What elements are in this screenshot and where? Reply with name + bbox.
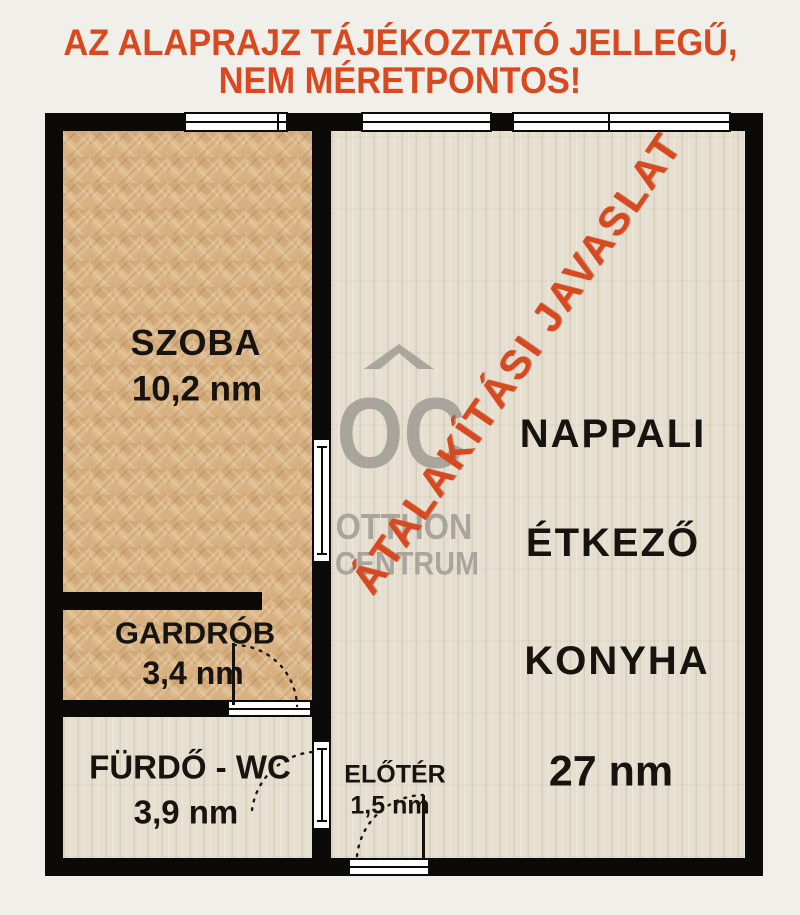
eloter-area: 1,5 nm [350,794,429,819]
wall-szoba-gardrob [63,592,262,610]
door-gardrob-icon [227,700,312,717]
interior-window-icon [312,438,331,563]
furdo-floor [63,717,313,858]
wall-right [745,113,763,876]
nappali-area: 27 nm [549,751,673,794]
window-top-right-icon [512,112,731,132]
furdo-area: 3,9 nm [134,796,239,829]
gardrob-area: 3,4 nm [142,657,243,689]
notice-line-1-text: AZ ALAPRAJZ TÁJÉKOZTATÓ JELLEGŰ, [63,22,737,64]
nappali-label: NAPPALI [520,414,707,454]
wall-gardrob-furdo [63,700,227,717]
furdo-label: FÜRDŐ - WC [89,751,291,784]
door-entrance-icon [348,858,430,876]
gardrob-label: GARDRÓB [115,618,275,649]
floor-plan: AZ ALAPRAJZ TÁJÉKOZTATÓ JELLEGŰ, NEM MÉR… [0,0,800,915]
szoba-label: SZOBA [131,325,262,361]
window-top-middle-icon [361,112,492,132]
konyha-label: KONYHA [524,641,709,681]
notice-line-2: NEM MÉRETPONTOS! [0,60,800,102]
szoba-area: 10,2 nm [132,372,262,407]
notice-line-1: AZ ALAPRAJZ TÁJÉKOZTATÓ JELLEGŰ, [0,22,800,64]
wall-left [45,113,63,876]
window-top-left-icon [184,112,288,132]
etkezo-label: ÉTKEZŐ [526,523,700,563]
eloter-label: ELŐTÉR [344,763,445,788]
door-bathroom-icon [312,740,331,830]
nappali-floor [331,131,745,858]
notice-line-2-text: NEM MÉRETPONTOS! [219,60,582,102]
